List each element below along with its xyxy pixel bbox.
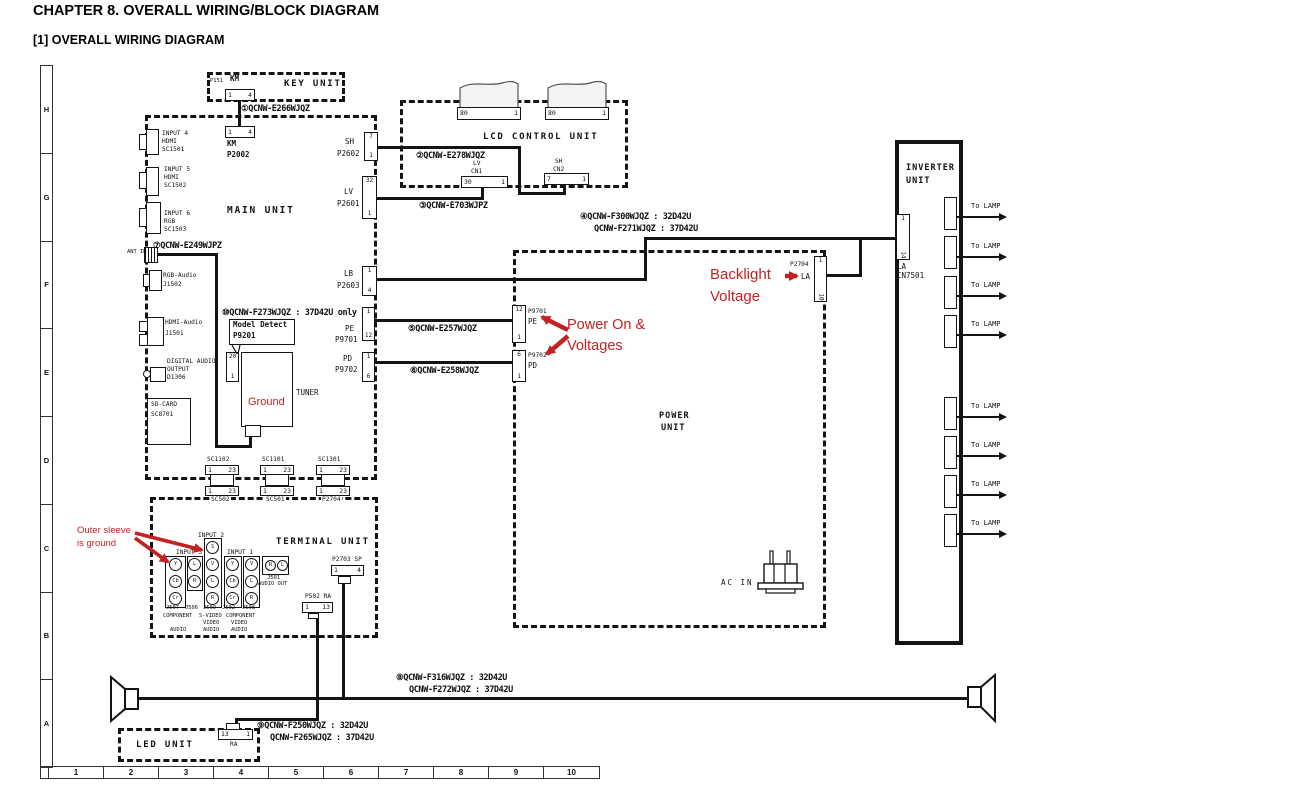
digital-audio-connector <box>150 367 166 382</box>
row-label: F <box>41 242 52 330</box>
lb-ref: P2603 <box>337 282 360 291</box>
wire-4 <box>827 274 862 277</box>
input6-ref: SC1503 <box>164 226 186 233</box>
pin: 1 <box>246 731 250 737</box>
ra-connector: 13 1 <box>218 729 253 740</box>
wire-7 <box>215 253 218 448</box>
wire-2 <box>377 146 521 149</box>
wire-2 <box>518 192 566 195</box>
col-label: 3 <box>159 767 214 778</box>
hdmi-input5-connector <box>146 167 159 196</box>
lamp-arrow <box>957 455 1005 457</box>
cn7501-connector: 1 14 <box>896 214 910 260</box>
col-label: 5 <box>269 767 324 778</box>
col-label: 6 <box>324 767 379 778</box>
pin: 80 <box>460 110 468 116</box>
lamp-arrow <box>957 216 1005 218</box>
lamp-arrow <box>957 295 1005 297</box>
sd-card-label: SD-CARD <box>151 401 177 408</box>
pin: 14 <box>900 251 906 258</box>
pin: 23 <box>228 467 236 473</box>
pin: 1 <box>582 176 586 182</box>
pin: 6 <box>367 374 371 380</box>
row-label: G <box>41 154 52 242</box>
wire-sp <box>342 584 345 699</box>
lamp-connector <box>944 315 957 348</box>
cable-4-label: ④QCNW-F300WJQZ : 32D42U <box>580 212 691 222</box>
p2602-connector: 7 1 <box>364 132 378 161</box>
rca-jack: L <box>245 575 258 588</box>
pin: 1 <box>228 92 232 98</box>
cable-9-label: ⑨QCNW-F250WJQZ : 32D42U <box>257 721 368 731</box>
cn2-connector: 7 1 <box>544 173 589 185</box>
backlight-arrow <box>783 267 809 285</box>
pin: 6 <box>517 352 521 358</box>
pin: 12 <box>365 333 372 339</box>
ac-in-label: AC IN <box>721 579 754 588</box>
p2704-board-label: P2704 <box>321 496 342 503</box>
hdmi-input4-connector <box>146 129 159 155</box>
main-unit-title: MAIN UNIT <box>227 205 295 216</box>
input6-type: RGB <box>164 218 175 225</box>
lamp-arrow <box>957 334 1005 336</box>
input5-type: HDMI <box>164 174 179 181</box>
backlight-annotation: Backlight <box>710 266 771 283</box>
to-lamp-label: To LAMP <box>971 320 1001 328</box>
power-on-arrows <box>528 304 572 366</box>
jack-group-label: COMPONENT <box>163 614 192 620</box>
key-unit-ref: P151 <box>210 79 223 85</box>
lamp-arrow <box>957 494 1005 496</box>
p502-label: P502 RA <box>305 593 331 600</box>
lamp-connector <box>944 197 957 230</box>
p9701-main-connector: 1 12 <box>362 307 375 341</box>
p2603-connector: 1 4 <box>362 266 377 296</box>
pin: 4 <box>357 567 361 573</box>
rgb-audio-connector <box>149 270 162 291</box>
pin: 80 <box>548 110 556 116</box>
wire-5 <box>375 319 513 322</box>
p2703-connector: 1 4 <box>331 565 364 576</box>
pin: 23 <box>339 467 347 473</box>
lamp-arrow <box>957 533 1005 535</box>
jack-ref: J508 <box>242 606 255 612</box>
pin: 1 <box>517 374 521 380</box>
input5-ref: SC1502 <box>164 182 186 189</box>
key-unit-title: KEY UNIT <box>284 79 342 89</box>
sh-label: SH <box>345 138 354 147</box>
row-label: B <box>41 593 52 681</box>
wire-6 <box>375 361 513 364</box>
digital-audio-jack <box>143 370 151 378</box>
rgb-audio-ref: J1502 <box>163 281 182 288</box>
hdmi-audio-label: HDMI-Audio <box>165 319 202 326</box>
to-lamp-label: To LAMP <box>971 202 1001 210</box>
tuner-label: TUNER <box>296 389 319 398</box>
to-lamp-label: To LAMP <box>971 402 1001 410</box>
pin: 1 <box>231 374 235 380</box>
pin: 1 <box>208 488 212 494</box>
ra-label: RA <box>230 741 237 748</box>
lamp-connector <box>944 436 957 469</box>
p9201-connector: 20 1 <box>226 352 239 382</box>
pd-label: PD <box>343 355 352 364</box>
wire-2 <box>518 146 521 195</box>
col-label: 1 <box>49 767 104 778</box>
pe-label: PE <box>345 325 354 334</box>
cable-2-label: ②QCNW-E278WJQZ <box>416 151 485 161</box>
speaker-icon-right <box>966 672 998 724</box>
lamp-connector <box>944 475 957 508</box>
km-p2002-connector: 1 4 <box>225 126 255 138</box>
p2703-label: P2703 SP <box>332 556 362 563</box>
sh-ref: P2602 <box>337 150 360 159</box>
sc501-label: SC501 <box>265 496 286 503</box>
sc1101-label: SC1101 <box>262 456 284 463</box>
wire-3 <box>377 197 484 200</box>
model-detect-label: Model Detect <box>233 321 287 330</box>
ground-annotation: Ground <box>248 396 285 408</box>
hdmi-audio-ref: J1501 <box>165 330 184 337</box>
wire-4 <box>859 240 862 277</box>
rgb-audio-tab <box>143 274 150 287</box>
lv-ref: P2601 <box>337 200 360 209</box>
pin: 1 <box>901 216 905 222</box>
pin: 1 <box>368 211 372 217</box>
lamp-arrow <box>957 416 1005 418</box>
pin: 4 <box>368 288 372 294</box>
pin: 1 <box>263 488 267 494</box>
rca-jack: Cb <box>169 575 182 588</box>
col-label: 7 <box>379 767 434 778</box>
ant-in-label: ANT IN <box>127 250 146 256</box>
power-unit-title1: POWER <box>659 411 690 421</box>
wire-3 <box>481 188 484 200</box>
jack-group-label: AUDIO <box>203 628 219 634</box>
to-lamp-label: To LAMP <box>971 242 1001 250</box>
rca-jack: Y <box>226 558 239 571</box>
pin: 1 <box>319 488 323 494</box>
lb-label: LB <box>344 270 353 279</box>
digital-audio-label: DIGITAL AUDIO <box>167 358 215 365</box>
jack-ref: J509 <box>203 606 216 612</box>
cable-9-label2: QCNW-F265WJQZ : 37D42U <box>270 733 374 743</box>
outer-sleeve-annotation: Outer sleeve <box>77 525 131 536</box>
rgb-audio-label: RGB-Audio <box>163 272 197 279</box>
jack-group-label: AUDIO <box>170 628 186 634</box>
pin: 10 <box>817 293 823 300</box>
pin: 7 <box>369 134 373 140</box>
pin: 23 <box>283 488 291 494</box>
cn7501-ref: CN7501 <box>897 272 924 281</box>
row-label: H <box>41 66 52 154</box>
cn2-label: SH <box>555 158 562 165</box>
cable-8-label: ⑧QCNW-F316WJQZ : 32D42U <box>396 673 507 683</box>
jack-group-label: AUDIO <box>231 628 247 634</box>
p2704-connector: 1 10 <box>814 256 827 302</box>
pin: 1 <box>368 268 372 274</box>
col-label: 8 <box>434 767 489 778</box>
flex-cable <box>456 77 522 109</box>
input1-label: INPUT 1 <box>227 549 253 556</box>
rca-jack: R <box>245 592 258 605</box>
digital-audio-ref: D1306 <box>167 374 186 381</box>
wire-7 <box>215 445 252 448</box>
row-label: A <box>41 680 52 767</box>
pin: 23 <box>283 467 291 473</box>
tuner-box <box>241 352 293 427</box>
model-detect-pointer <box>227 344 247 356</box>
rca-jack: R <box>188 575 201 588</box>
p502-connector: 1 13 <box>302 602 333 613</box>
km-ref: P2002 <box>227 151 250 160</box>
wire-4 <box>377 278 647 281</box>
pin: 32 <box>366 178 373 184</box>
power-on-annotation2: Voltages <box>567 338 623 354</box>
key-unit-conn-label: KM <box>230 75 239 84</box>
power-unit-title2: UNIT <box>661 423 685 433</box>
col-label: 9 <box>489 767 544 778</box>
pin: 13 <box>221 731 229 737</box>
speaker-icon-left <box>108 674 140 724</box>
rca-jack: Cr <box>226 592 239 605</box>
rca-jack: V <box>245 558 258 571</box>
page-title: CHAPTER 8. OVERALL WIRING/BLOCK DIAGRAM <box>33 3 379 19</box>
lv-label: LV <box>344 188 353 197</box>
jack-ref: J506 <box>185 606 198 612</box>
wire-8-speaker <box>138 697 968 700</box>
cable-5-label: ⑤QCNW-E257WJQZ <box>408 324 477 334</box>
row-label: C <box>41 505 52 593</box>
col-label: 2 <box>104 767 159 778</box>
pin: 1 <box>514 110 518 116</box>
col-label: 4 <box>214 767 269 778</box>
inverter-unit-title1: INVERTER <box>906 163 955 173</box>
pe-ref: P9701 <box>335 336 358 345</box>
lcd-flex-connector: 80 1 <box>545 107 609 120</box>
input4-ref: SC1501 <box>162 146 184 153</box>
row-label: D <box>41 417 52 505</box>
pin: 13 <box>322 604 330 610</box>
input4-label: INPUT 4 <box>162 130 188 137</box>
col-label: 10 <box>544 767 599 778</box>
pin: 4 <box>248 129 252 135</box>
cn2-ref: CN2 <box>553 166 564 173</box>
to-lamp-label: To LAMP <box>971 519 1001 527</box>
wire-2 <box>563 185 566 195</box>
board-connector-body <box>210 474 234 486</box>
input5-label: INPUT 5 <box>164 166 190 173</box>
p9701-power-connector: 12 1 <box>512 305 526 343</box>
key-unit-connector: 1 4 <box>225 89 255 101</box>
column-ruler: 1 2 3 4 5 6 7 8 9 10 <box>40 766 600 779</box>
lamp-connector <box>944 236 957 269</box>
cn1-label: LV <box>473 160 480 167</box>
cable-4-label2: QCNW-F271WJQZ : 37D42U <box>594 224 698 234</box>
p9702-power-connector: 6 1 <box>512 350 526 382</box>
p2601-connector: 32 1 <box>362 176 377 219</box>
power-on-annotation: Power On & <box>567 317 645 333</box>
jack-ref: J502 <box>222 606 235 612</box>
cable-10-label: ⑩QCNW-F273WJQZ : 37D42U only <box>222 308 357 318</box>
pin: 23 <box>228 488 236 494</box>
rgb-input6-tab <box>139 208 147 227</box>
board-connector-body <box>265 474 289 486</box>
rca-jack: L <box>277 560 288 571</box>
pin: 1 <box>819 258 823 264</box>
wiring-diagram-page: CHAPTER 8. OVERALL WIRING/BLOCK DIAGRAM … <box>0 0 1316 788</box>
lamp-connector <box>944 514 957 547</box>
lcd-unit-title: LCD CONTROL UNIT <box>483 132 599 142</box>
model-detect-ref: P9201 <box>233 332 256 341</box>
pin: 1 <box>334 567 338 573</box>
pin: 4 <box>248 92 252 98</box>
pin: 1 <box>367 354 371 360</box>
column-ruler-lead <box>41 767 49 778</box>
jack-ref: J507 <box>166 606 179 612</box>
ac-plug-icon <box>757 550 805 594</box>
terminal-unit-title: TERMINAL UNIT <box>276 537 370 547</box>
wire-9 <box>316 619 319 720</box>
cable-1-label: ①QCNW-E266WJQZ <box>241 104 310 114</box>
pin: 12 <box>515 307 522 313</box>
rca-jack: Cr <box>169 592 182 605</box>
p2703-stub <box>338 576 351 584</box>
pin: 1 <box>369 153 373 159</box>
p502-stub <box>308 613 319 619</box>
pin: 1 <box>517 335 521 341</box>
lcd-flex-connector: 80 1 <box>457 107 521 120</box>
rca-jack: L <box>206 575 219 588</box>
rgb-input6-connector <box>146 202 161 234</box>
pin: 23 <box>339 488 347 494</box>
page-subtitle: [1] OVERALL WIRING DIAGRAM <box>33 33 224 47</box>
row-label: E <box>41 329 52 417</box>
audio-out-label: AUDIO OUT <box>258 582 287 588</box>
wire-7 <box>249 436 252 446</box>
digital-audio-label2: OUTPUT <box>167 366 189 373</box>
lamp-connector <box>944 397 957 430</box>
pin: 1 <box>228 129 232 135</box>
to-lamp-label: To LAMP <box>971 281 1001 289</box>
led-unit-title: LED UNIT <box>136 740 194 750</box>
sc1301-label: SC1301 <box>318 456 340 463</box>
pin: 7 <box>547 176 551 182</box>
pin: 1 <box>319 467 323 473</box>
rca-jack: R <box>265 560 276 571</box>
lamp-arrow <box>957 256 1005 258</box>
cable-7-label: ⑦QCNW-E249WJPZ <box>153 241 222 251</box>
cn1-connector: 30 1 <box>461 176 508 188</box>
to-lamp-label: To LAMP <box>971 480 1001 488</box>
pin: 1 <box>501 179 505 185</box>
sc502-label: SC502 <box>210 496 231 503</box>
cable-8-label2: QCNW-F272WJQZ : 37D42U <box>409 685 513 695</box>
cn1-ref: CN1 <box>471 168 482 175</box>
pd-ref: P9702 <box>335 366 358 375</box>
tuner-ground-lug <box>245 425 261 437</box>
pin: 1 <box>305 604 309 610</box>
hdmi-input4-tab <box>139 134 147 150</box>
flex-cable <box>544 77 610 109</box>
rca-jack: R <box>206 592 219 605</box>
km-label: KM <box>227 140 236 149</box>
pin: 1 <box>263 467 267 473</box>
input4-type: HDMI <box>162 138 177 145</box>
lamp-connector <box>944 276 957 309</box>
hdmi-input5-tab <box>139 172 147 189</box>
pin: 1 <box>367 309 371 315</box>
p9702-main-connector: 1 6 <box>362 352 375 382</box>
sd-card-ref: SC8701 <box>151 411 173 418</box>
to-lamp-label: To LAMP <box>971 441 1001 449</box>
hdmi-audio-tab <box>139 321 148 332</box>
board-connector-body <box>321 474 345 486</box>
outer-sleeve-annotation2: is ground <box>77 538 116 549</box>
wire-7 <box>157 253 218 256</box>
pin: 30 <box>464 179 472 185</box>
backlight-annotation2: Voltage <box>710 288 760 305</box>
hdmi-audio-connector <box>147 317 164 346</box>
sc1102-label: SC1102 <box>207 456 229 463</box>
hdmi-audio-tab <box>139 334 148 346</box>
inverter-unit-title2: UNIT <box>906 176 930 186</box>
outer-sleeve-arrows <box>126 521 218 573</box>
cable-6-label: ⑥QCNW-E258WJQZ <box>410 366 479 376</box>
rca-jack: Cb <box>226 575 239 588</box>
pin: 1 <box>208 467 212 473</box>
wire-4 <box>644 240 647 281</box>
input6-label: INPUT 6 <box>164 210 190 217</box>
pin: 1 <box>602 110 606 116</box>
row-ruler: H G F E D C B A <box>40 65 53 768</box>
cable-3-label: ③QCNW-E703WJPZ <box>419 201 488 211</box>
